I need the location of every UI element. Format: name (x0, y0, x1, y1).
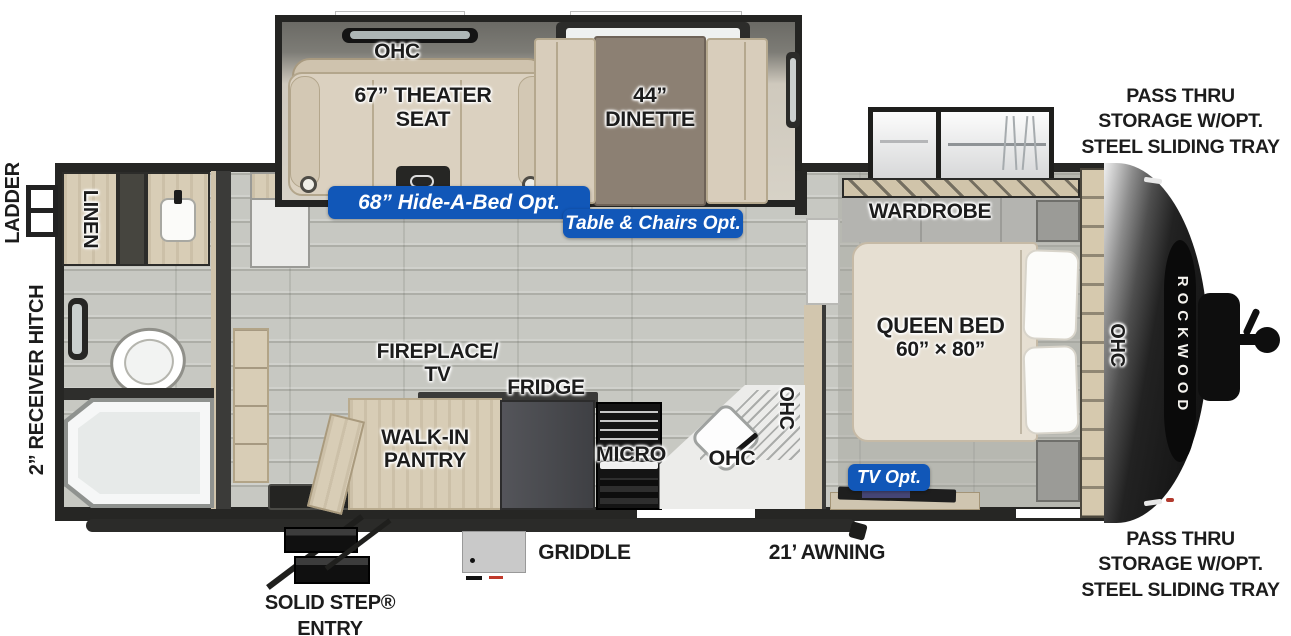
theater-armrest-left (290, 76, 320, 188)
pass-thru-bottom-line3: STEEL SLIDING TRAY (1070, 578, 1291, 603)
theater-seat-label-line2: SEAT (328, 108, 518, 132)
dinette-bench-right-seam (744, 42, 746, 200)
linen-shelf-dark (118, 172, 146, 266)
bedroom-tv-screen (862, 491, 910, 498)
dinette-label-line1: 44” (588, 84, 712, 108)
pass-thru-storage-label-bottom: PASS THRU STORAGE W/OPT. STEEL SLIDING T… (1070, 527, 1291, 603)
front-ohc-band (1080, 168, 1106, 518)
fireplace-tv-label-line2: TV (370, 363, 505, 386)
dinette-bench-left-seam (556, 42, 558, 200)
wall-stub-slide-right (795, 171, 807, 215)
griddle-knob-icon (470, 558, 475, 563)
theater-window-glass (350, 31, 470, 39)
pass-thru-top-line1: PASS THRU (1070, 84, 1291, 109)
theater-seat-label-line1: 67” THEATER (328, 84, 518, 108)
slideout-side-window-glass (790, 58, 796, 122)
pass-thru-top-line3: STEEL SLIDING TRAY (1070, 135, 1291, 160)
solid-step-line2: ENTRY (250, 616, 410, 636)
range-drawer (600, 478, 658, 504)
pass-thru-storage-label-top: PASS THRU STORAGE W/OPT. STEEL SLIDING T… (1070, 84, 1291, 160)
pillow-bottom-icon (1022, 345, 1079, 435)
fridge-label: FRIDGE (496, 376, 596, 399)
solid-step-entry-label: SOLID STEP® ENTRY (250, 590, 410, 636)
walk-in-pantry-label: WALK-IN PANTRY (360, 426, 490, 472)
awning-end-cap (848, 521, 868, 541)
fireplace-tv-label: FIREPLACE/ TV (370, 340, 505, 386)
wardrobe-slide-top (842, 178, 1080, 198)
bottom-door-opening (637, 509, 755, 518)
queen-bed-label-line1: QUEEN BED (858, 314, 1023, 338)
hide-a-bed-option-tag: 68” Hide-A-Bed Opt. (328, 186, 590, 219)
nightstand-top (1036, 200, 1080, 242)
tv-option-tag: TV Opt. (848, 464, 930, 491)
hitch-coupler-icon (1254, 327, 1280, 353)
cap-marker-light-red (1166, 498, 1174, 502)
linen-label: LINEN (79, 179, 101, 259)
fireplace-tv-label-line1: FIREPLACE/ (370, 340, 505, 363)
wardrobe-rod-icon (948, 143, 1046, 146)
bath-faucet-icon (174, 190, 182, 204)
ohc-sink-wall-label: OHC (775, 378, 797, 438)
receiver-hitch-label: 2” RECEIVER HITCH (26, 265, 48, 495)
passthru-storage-divider (936, 109, 941, 181)
propane-cover-icon (1198, 293, 1240, 401)
pillow-top-icon (1022, 249, 1079, 341)
pantry-label-line1: WALK-IN (360, 426, 490, 449)
griddle-valve-icon (489, 576, 503, 579)
hall-cabinet-white (806, 218, 840, 305)
corridor-dresser (233, 328, 269, 483)
fridge-box (500, 400, 595, 510)
bath-divider-wall (216, 171, 231, 509)
shower-pan-basin (78, 412, 200, 494)
bedroom-divider-wall (804, 305, 826, 509)
bath-window-glass (72, 304, 82, 354)
rockwood-brand-text: ROCKWOOD (1169, 266, 1191, 426)
wardrobe-label: WARDROBE (855, 200, 1005, 223)
pantry-label-line2: PANTRY (360, 449, 490, 472)
griddle-handle-icon (466, 576, 482, 580)
ohc-front-label: OHC (1106, 315, 1128, 375)
ladder-label: LADDER (2, 153, 24, 253)
pass-thru-top-line2: STORAGE W/OPT. (1070, 109, 1291, 134)
dinette-label: 44” DINETTE (588, 84, 712, 131)
micro-label: MICRO (588, 443, 674, 467)
ladder-rung-icon (26, 208, 58, 213)
ohc-kitchen-label: OHC (693, 447, 771, 471)
table-chairs-option-tag: Table & Chairs Opt. (563, 209, 743, 238)
cupholder-left-icon (300, 176, 317, 193)
theater-seat-label: 67” THEATER SEAT (328, 84, 518, 131)
queen-bed-label-line2: 60” × 80” (858, 338, 1023, 361)
nightstand-bottom (1036, 440, 1080, 502)
bath-sink (160, 198, 196, 242)
pass-thru-bottom-line2: STORAGE W/OPT. (1070, 552, 1291, 577)
griddle-icon (462, 531, 526, 573)
awning-label: 21’ AWNING (757, 541, 897, 564)
passthru-storage-shelf (880, 140, 928, 143)
dinette-bench-left (534, 38, 596, 204)
ohc-slide-label: OHC (352, 40, 442, 63)
dinette-label-line2: DINETTE (588, 108, 712, 132)
queen-bed-label: QUEEN BED 60” × 80” (858, 314, 1023, 361)
solid-step-line1: SOLID STEP® (250, 590, 410, 616)
dinette-bench-right (706, 38, 768, 204)
griddle-label: GRIDDLE (532, 541, 637, 564)
pass-thru-bottom-line1: PASS THRU (1070, 527, 1291, 552)
floorplan-canvas: LINEN OHC 67” THEATER SEAT 44” DINETTE (0, 0, 1291, 636)
